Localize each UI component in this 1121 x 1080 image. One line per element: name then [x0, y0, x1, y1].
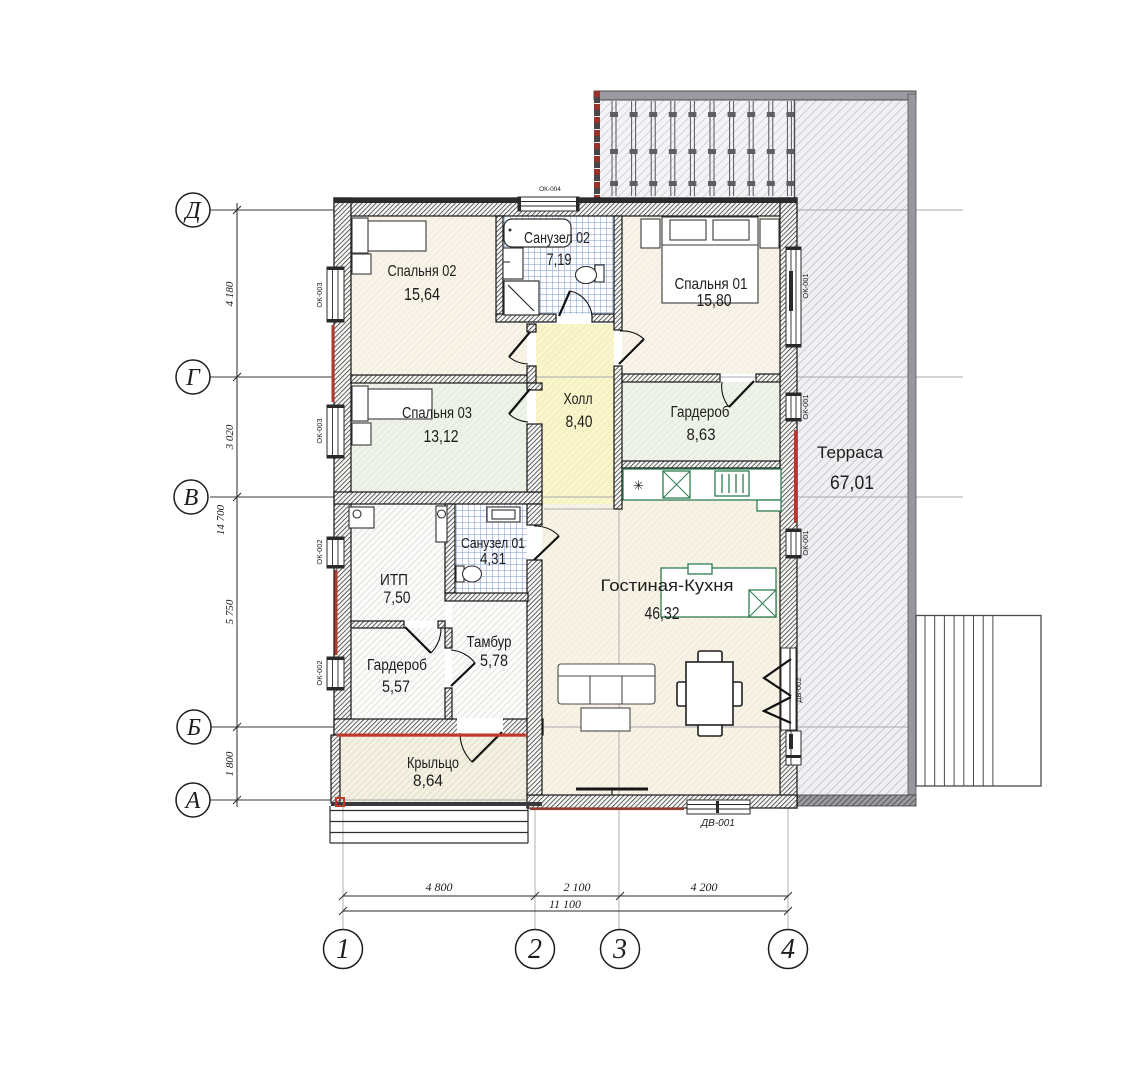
svg-text:5,78: 5,78 [480, 651, 508, 670]
svg-text:ОК-002: ОК-002 [315, 539, 324, 564]
svg-text:7,19: 7,19 [547, 250, 572, 269]
svg-text:11 100: 11 100 [549, 897, 581, 911]
svg-text:ОК-003: ОК-003 [315, 418, 324, 443]
svg-text:8,63: 8,63 [687, 425, 716, 444]
svg-text:4 800: 4 800 [426, 880, 453, 894]
svg-text:8,40: 8,40 [566, 412, 593, 431]
svg-text:1 800: 1 800 [224, 751, 236, 776]
svg-text:А: А [184, 788, 201, 814]
svg-text:ИТП: ИТП [380, 572, 408, 589]
svg-text:13,12: 13,12 [424, 426, 459, 446]
svg-text:2: 2 [528, 934, 542, 965]
svg-text:В: В [184, 485, 199, 511]
svg-text:46,32: 46,32 [645, 603, 680, 623]
svg-text:4 200: 4 200 [691, 880, 718, 894]
svg-text:ДВ-002: ДВ-002 [794, 677, 803, 702]
svg-text:Терраса: Терраса [817, 444, 884, 462]
svg-text:2 100: 2 100 [564, 880, 591, 894]
svg-text:5,57: 5,57 [382, 677, 410, 696]
svg-text:✳: ✳ [633, 478, 644, 493]
svg-text:3: 3 [612, 934, 627, 965]
svg-text:ОК-001: ОК-001 [801, 394, 810, 419]
svg-text:Крыльцо: Крыльцо [407, 755, 459, 772]
svg-text:ДВ-001: ДВ-001 [700, 818, 735, 829]
svg-text:67,01: 67,01 [830, 473, 874, 494]
svg-text:Гардероб: Гардероб [367, 657, 427, 674]
svg-text:Гардероб: Гардероб [671, 404, 730, 421]
svg-text:Тамбур: Тамбур [467, 634, 512, 651]
svg-text:4: 4 [781, 934, 795, 965]
svg-text:Гостиная-Кухня: Гостиная-Кухня [601, 576, 734, 595]
svg-text:Спальня 03: Спальня 03 [402, 405, 472, 422]
svg-text:3 020: 3 020 [224, 424, 236, 450]
svg-text:15,80: 15,80 [697, 290, 732, 310]
svg-text:Холл: Холл [564, 391, 593, 408]
svg-text:15,64: 15,64 [404, 284, 440, 304]
svg-text:14 700: 14 700 [215, 504, 227, 535]
svg-text:Санузел 02: Санузел 02 [524, 230, 590, 247]
svg-text:ОК-001: ОК-001 [801, 273, 810, 298]
svg-text:ОК-001: ОК-001 [801, 530, 810, 555]
svg-text:Г: Г [185, 365, 201, 391]
svg-text:4,31: 4,31 [480, 551, 506, 568]
svg-text:5 750: 5 750 [224, 599, 236, 624]
svg-text:Б: Б [186, 715, 201, 741]
svg-text:8,64: 8,64 [413, 771, 443, 790]
svg-text:ОК-003: ОК-003 [315, 282, 324, 307]
svg-text:Санузел 01: Санузел 01 [461, 535, 525, 552]
svg-text:ОК-004: ОК-004 [539, 186, 561, 193]
svg-text:7,50: 7,50 [384, 588, 411, 607]
svg-text:Спальня 02: Спальня 02 [388, 263, 457, 280]
svg-text:ОК-002: ОК-002 [315, 660, 324, 685]
svg-text:Д: Д [183, 198, 202, 224]
svg-text:4 180: 4 180 [224, 281, 236, 306]
svg-text:1: 1 [336, 934, 350, 965]
